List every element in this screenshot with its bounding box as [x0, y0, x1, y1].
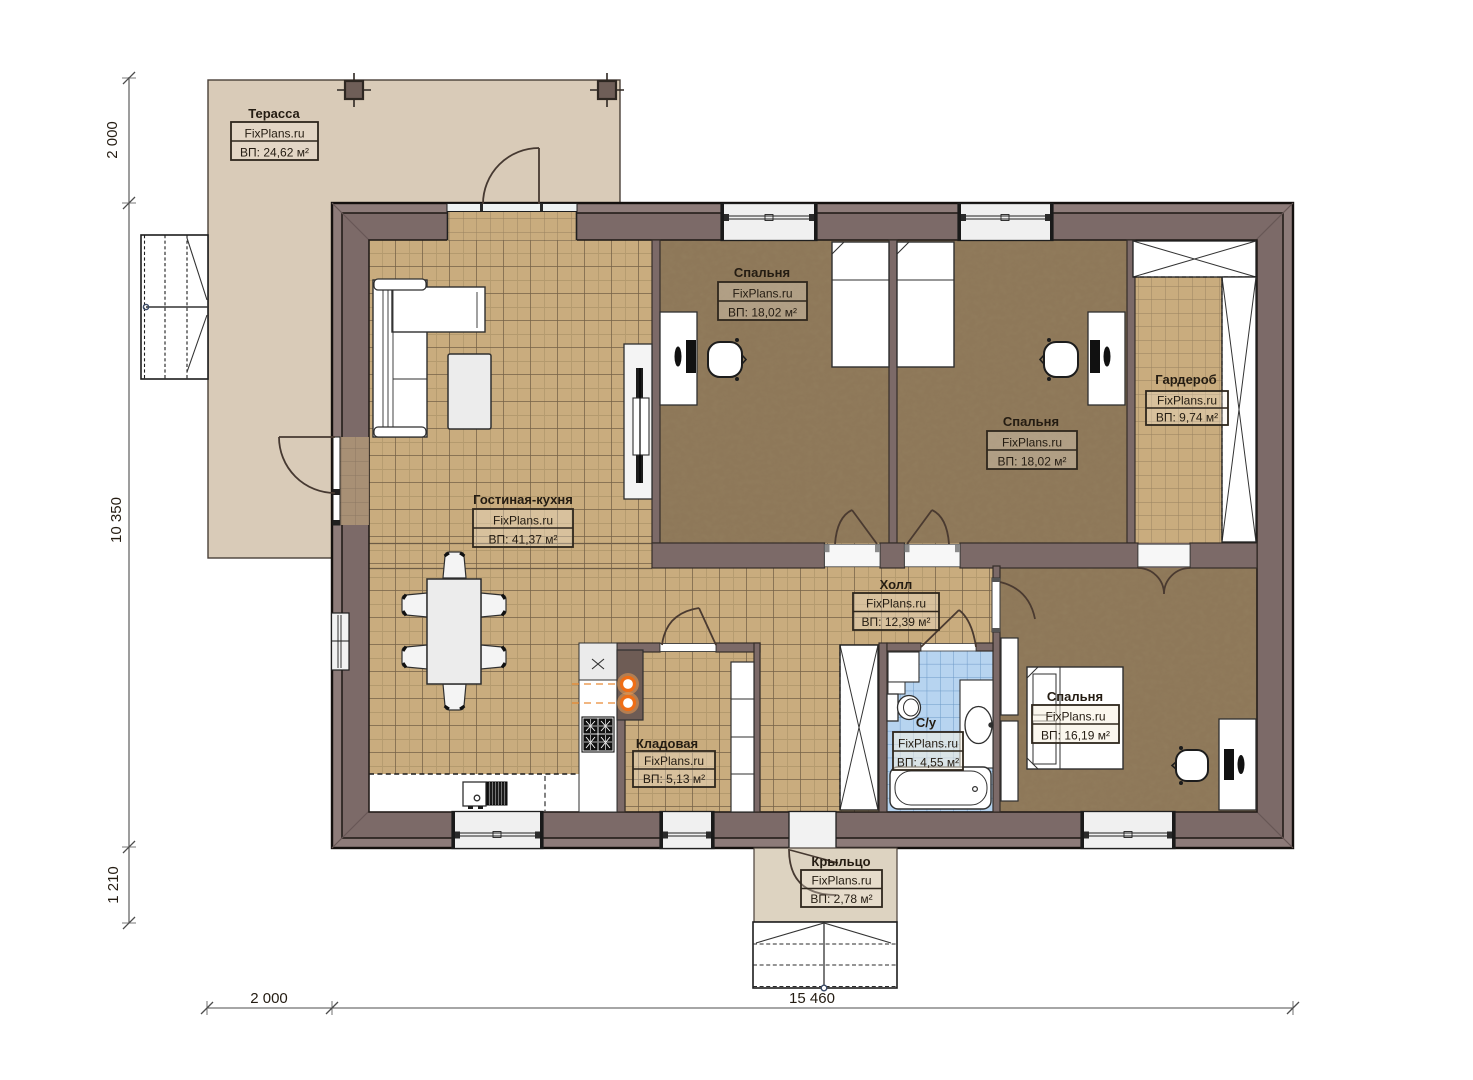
svg-text:Терасса: Терасса: [248, 106, 300, 121]
svg-text:15 460: 15 460: [789, 990, 835, 1007]
svg-text:FixPlans.ru: FixPlans.ru: [732, 287, 792, 301]
svg-text:Спальня: Спальня: [1047, 689, 1103, 704]
svg-text:FixPlans.ru: FixPlans.ru: [866, 597, 926, 611]
svg-text:С/у: С/у: [916, 715, 937, 730]
svg-text:FixPlans.ru: FixPlans.ru: [898, 737, 958, 751]
svg-text:FixPlans.ru: FixPlans.ru: [493, 514, 553, 528]
svg-text:10 350: 10 350: [108, 497, 125, 543]
svg-text:2 000: 2 000: [250, 990, 288, 1007]
svg-text:ВП: 18,02 м²: ВП: 18,02 м²: [998, 455, 1067, 469]
svg-text:Гостиная-кухня: Гостиная-кухня: [473, 492, 573, 507]
svg-text:Холл: Холл: [880, 577, 913, 592]
svg-text:ВП: 5,13 м²: ВП: 5,13 м²: [643, 772, 705, 786]
svg-text:ВП: 16,19 м²: ВП: 16,19 м²: [1041, 729, 1110, 743]
svg-text:ВП: 41,37 м²: ВП: 41,37 м²: [489, 533, 558, 547]
svg-text:FixPlans.ru: FixPlans.ru: [811, 874, 871, 888]
svg-text:ВП: 18,02 м²: ВП: 18,02 м²: [728, 306, 797, 320]
svg-text:FixPlans.ru: FixPlans.ru: [244, 127, 304, 141]
svg-text:FixPlans.ru: FixPlans.ru: [1157, 394, 1217, 408]
svg-text:2 000: 2 000: [104, 121, 121, 159]
svg-text:Спальня: Спальня: [734, 265, 790, 280]
svg-text:ВП: 24,62 м²: ВП: 24,62 м²: [240, 146, 309, 160]
svg-text:Гардероб: Гардероб: [1155, 372, 1216, 387]
svg-text:Крыльцо: Крыльцо: [811, 854, 870, 869]
svg-text:Кладовая: Кладовая: [636, 736, 698, 751]
svg-text:FixPlans.ru: FixPlans.ru: [644, 754, 704, 768]
svg-text:Спальня: Спальня: [1003, 414, 1059, 429]
svg-text:ВП: 4,55 м²: ВП: 4,55 м²: [897, 756, 959, 770]
svg-text:1 210: 1 210: [105, 866, 122, 904]
svg-text:FixPlans.ru: FixPlans.ru: [1045, 710, 1105, 724]
svg-text:ВП: 12,39 м²: ВП: 12,39 м²: [862, 615, 931, 629]
svg-text:ВП: 9,74 м²: ВП: 9,74 м²: [1156, 411, 1218, 425]
svg-text:FixPlans.ru: FixPlans.ru: [1002, 436, 1062, 450]
svg-text:ВП: 2,78 м²: ВП: 2,78 м²: [810, 892, 872, 906]
